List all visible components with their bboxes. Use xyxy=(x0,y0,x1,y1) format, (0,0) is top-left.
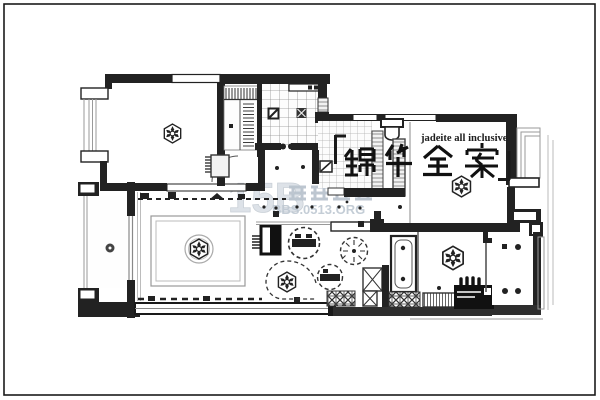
svg-text:BBS.0513.ORG: BBS.0513.ORG xyxy=(272,202,365,217)
svg-text:jadeite all inclusive: jadeite all inclusive xyxy=(420,133,508,144)
